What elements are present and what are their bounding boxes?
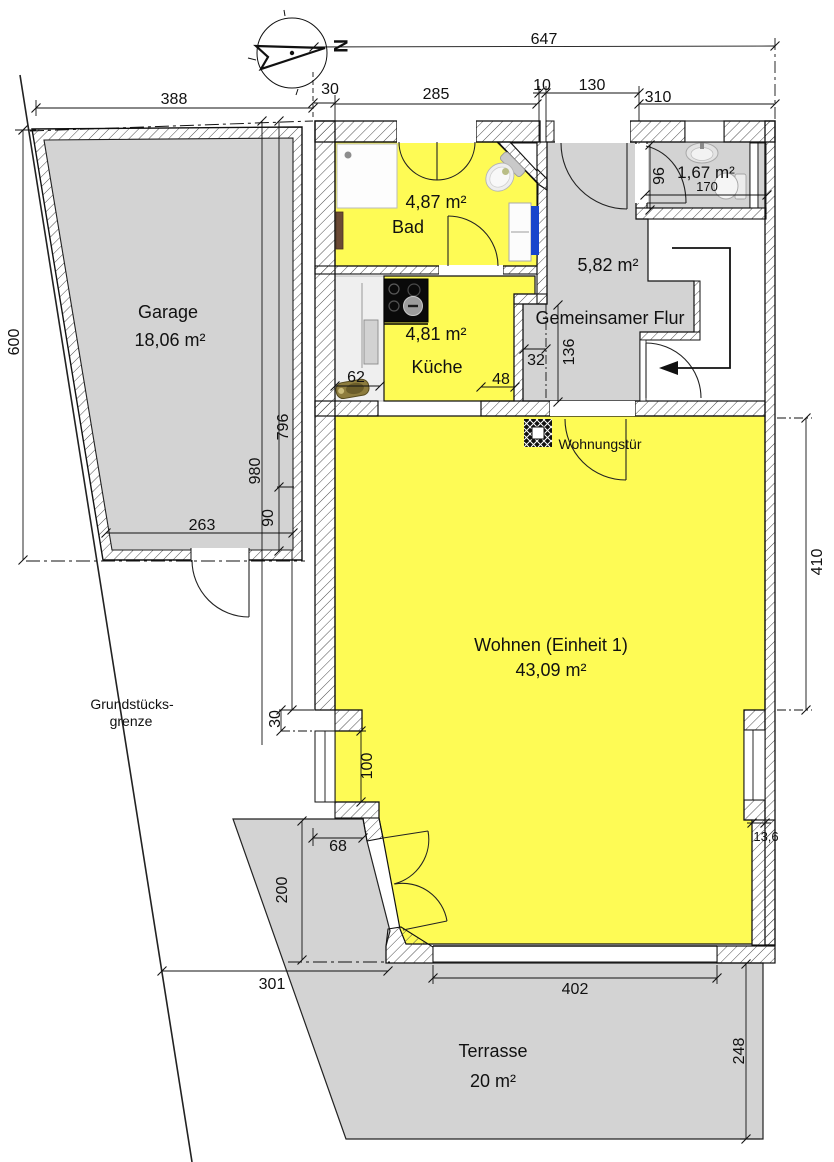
svg-text:136: 136 xyxy=(561,339,578,366)
svg-text:30: 30 xyxy=(321,81,339,98)
svg-text:48: 48 xyxy=(492,371,510,388)
svg-text:600: 600 xyxy=(6,329,23,356)
svg-text:32: 32 xyxy=(527,352,545,369)
svg-text:388: 388 xyxy=(161,91,188,108)
svg-text:10: 10 xyxy=(533,77,551,94)
svg-text:Küche: Küche xyxy=(411,357,462,377)
svg-text:263: 263 xyxy=(189,517,216,534)
svg-text:130: 130 xyxy=(579,77,606,94)
svg-text:N: N xyxy=(329,39,350,53)
svg-text:20 m²: 20 m² xyxy=(470,1071,516,1091)
svg-text:18,06 m²: 18,06 m² xyxy=(134,330,205,350)
svg-text:13,6: 13,6 xyxy=(753,829,778,844)
svg-text:100: 100 xyxy=(359,753,376,780)
svg-text:796: 796 xyxy=(275,414,292,441)
svg-text:410: 410 xyxy=(809,549,826,576)
svg-text:4,81 m²: 4,81 m² xyxy=(405,324,466,344)
svg-text:Wohnen (Einheit 1): Wohnen (Einheit 1) xyxy=(474,635,628,655)
svg-text:grenze: grenze xyxy=(110,713,153,729)
svg-text:96: 96 xyxy=(651,167,668,185)
svg-text:Gemeinsamer Flur: Gemeinsamer Flur xyxy=(535,308,684,328)
svg-text:248: 248 xyxy=(731,1038,748,1065)
svg-text:647: 647 xyxy=(531,31,558,48)
svg-text:Garage: Garage xyxy=(138,302,198,322)
svg-text:4,87 m²: 4,87 m² xyxy=(405,192,466,212)
svg-text:30: 30 xyxy=(267,710,284,728)
svg-text:402: 402 xyxy=(562,981,589,998)
svg-text:Grundstücks-: Grundstücks- xyxy=(90,696,174,712)
svg-text:62: 62 xyxy=(347,369,365,386)
svg-text:Terrasse: Terrasse xyxy=(458,1041,527,1061)
svg-text:43,09 m²: 43,09 m² xyxy=(515,660,586,680)
svg-text:90: 90 xyxy=(260,509,277,527)
svg-text:5,82 m²: 5,82 m² xyxy=(577,255,638,275)
svg-text:Bad: Bad xyxy=(392,217,424,237)
svg-text:170: 170 xyxy=(696,179,718,194)
svg-text:200: 200 xyxy=(274,877,291,904)
svg-text:301: 301 xyxy=(259,976,286,993)
svg-text:980: 980 xyxy=(247,458,264,485)
svg-text:Wohnungstür: Wohnungstür xyxy=(558,436,641,452)
svg-text:310: 310 xyxy=(645,89,672,106)
svg-text:285: 285 xyxy=(423,86,450,103)
svg-text:68: 68 xyxy=(329,838,347,855)
